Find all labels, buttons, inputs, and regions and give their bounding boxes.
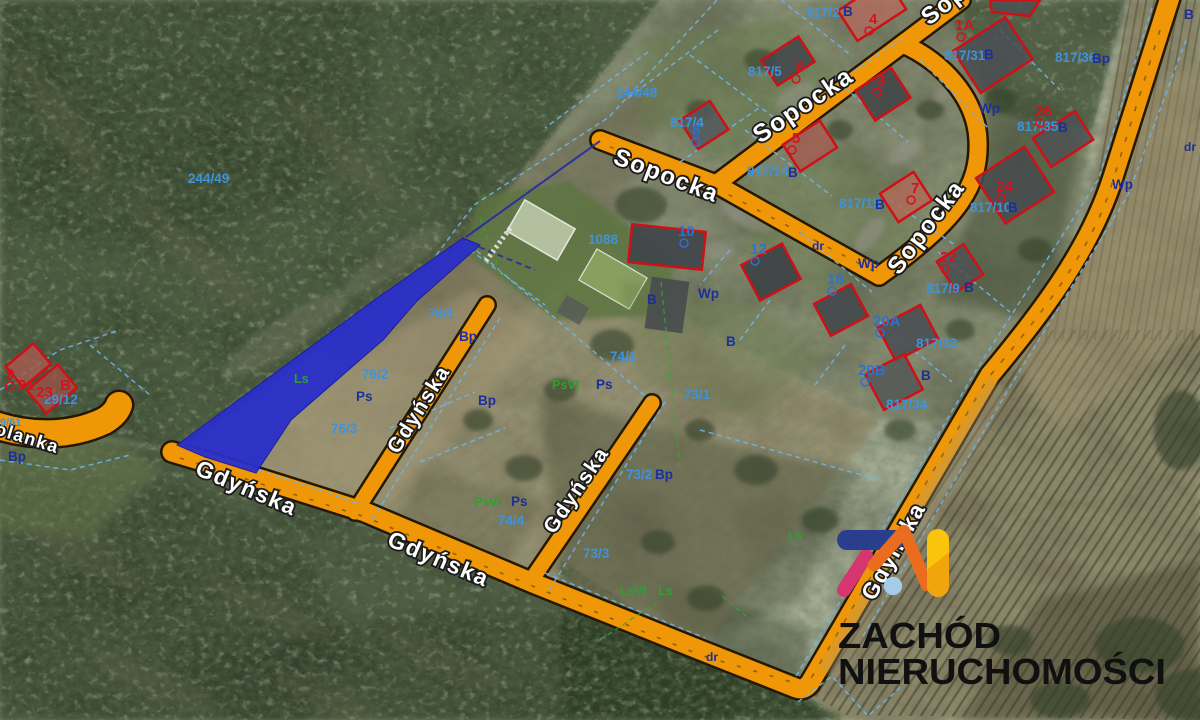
svg-text:Wp: Wp	[698, 286, 719, 301]
svg-text:74/4: 74/4	[498, 513, 525, 528]
svg-text:20A: 20A	[873, 313, 901, 330]
svg-text:9: 9	[6, 366, 14, 383]
svg-text:26: 26	[1035, 103, 1052, 120]
svg-text:244/48: 244/48	[616, 85, 658, 100]
svg-text:LsVI: LsVI	[620, 584, 646, 598]
svg-text:Ls: Ls	[294, 372, 309, 386]
svg-text:817/2: 817/2	[806, 5, 840, 20]
svg-text:73/1: 73/1	[684, 387, 711, 402]
svg-text:817/34: 817/34	[886, 397, 928, 412]
svg-text:Ps: Ps	[511, 494, 528, 509]
svg-text:B: B	[1058, 120, 1068, 135]
svg-text:244/49: 244/49	[188, 171, 229, 186]
svg-text:B: B	[1008, 200, 1018, 215]
svg-text:NIERUCHOMOŚCI: NIERUCHOMOŚCI	[838, 650, 1166, 692]
svg-text:76/1: 76/1	[428, 306, 455, 321]
svg-text:B: B	[875, 197, 885, 212]
svg-text:8: 8	[692, 122, 700, 139]
svg-text:Ps: Ps	[356, 389, 373, 404]
svg-text:Bp: Bp	[459, 329, 477, 344]
svg-text:22: 22	[940, 249, 957, 266]
svg-text:Bp: Bp	[1092, 51, 1110, 66]
svg-text:Wp: Wp	[979, 101, 1000, 116]
svg-text:76/2: 76/2	[362, 367, 388, 382]
svg-text:1088: 1088	[588, 232, 619, 247]
svg-text:4: 4	[869, 11, 878, 28]
svg-text:817/31: 817/31	[944, 48, 986, 63]
svg-text:B: B	[726, 334, 736, 349]
svg-text:Bp: Bp	[478, 393, 496, 408]
svg-text:6: 6	[796, 59, 804, 76]
svg-text:Bp: Bp	[655, 467, 673, 482]
svg-text:PsVI: PsVI	[552, 378, 579, 392]
svg-text:Ps: Ps	[596, 377, 613, 392]
svg-text:21: 21	[18, 377, 35, 394]
svg-text:20B: 20B	[858, 362, 886, 379]
svg-text:B: B	[984, 47, 994, 62]
svg-text:7: 7	[911, 180, 919, 197]
svg-text:74/1: 74/1	[610, 349, 637, 364]
svg-text:Wp: Wp	[1112, 177, 1133, 192]
svg-text:817/9: 817/9	[926, 281, 960, 296]
svg-text:B: B	[788, 165, 798, 180]
svg-text:817/36: 817/36	[1055, 50, 1097, 65]
svg-text:73/3: 73/3	[583, 546, 610, 561]
svg-text:9/51: 9/51	[0, 417, 21, 429]
svg-text:PsVI: PsVI	[474, 495, 501, 509]
svg-text:dr: dr	[706, 650, 718, 664]
svg-text:1A: 1A	[955, 17, 974, 34]
svg-text:dr: dr	[1184, 140, 1196, 154]
svg-text:76/3: 76/3	[331, 421, 358, 436]
svg-text:B: B	[60, 377, 71, 394]
svg-text:817/14: 817/14	[747, 164, 789, 179]
svg-text:B: B	[843, 4, 853, 19]
svg-text:ZACHÓD: ZACHÓD	[838, 614, 1001, 656]
svg-text:Ls: Ls	[788, 529, 803, 543]
svg-text:dr: dr	[812, 239, 824, 253]
svg-text:B: B	[1184, 7, 1194, 22]
svg-text:3: 3	[877, 72, 885, 89]
svg-text:817/5: 817/5	[748, 64, 782, 79]
svg-text:12: 12	[750, 241, 767, 258]
svg-text:Bp: Bp	[8, 449, 26, 464]
svg-text:817/10: 817/10	[970, 200, 1011, 215]
svg-text:24: 24	[996, 178, 1013, 195]
svg-text:Ls: Ls	[658, 584, 673, 598]
svg-text:5: 5	[792, 130, 800, 147]
svg-text:10: 10	[678, 223, 695, 240]
svg-text:B: B	[964, 280, 974, 295]
svg-text:B: B	[921, 368, 931, 383]
svg-text:B: B	[647, 292, 657, 307]
svg-text:817/33: 817/33	[916, 336, 958, 351]
svg-text:Wp: Wp	[858, 256, 879, 271]
svg-text:23: 23	[36, 384, 53, 401]
svg-text:18: 18	[827, 271, 844, 288]
svg-text:73/2: 73/2	[626, 467, 652, 482]
